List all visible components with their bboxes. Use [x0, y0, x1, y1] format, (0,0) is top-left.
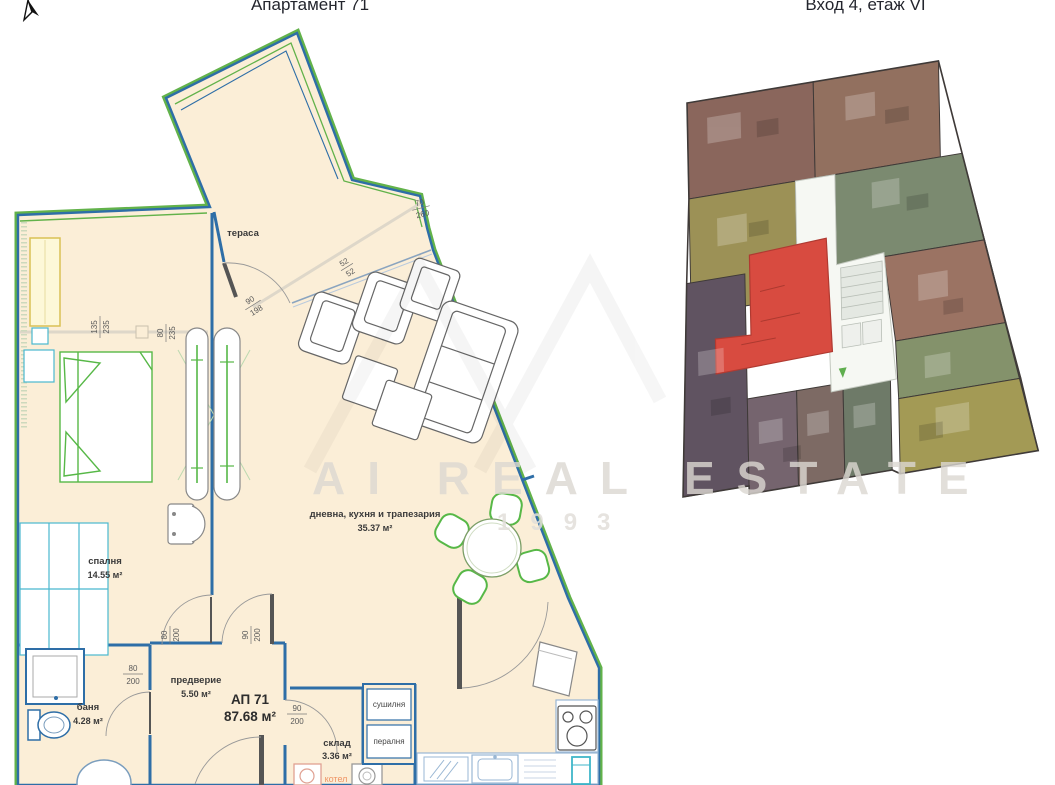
svg-text:235: 235	[168, 326, 177, 340]
bed	[60, 352, 152, 482]
stairwell	[841, 261, 883, 320]
apartment-code: АП 71	[231, 692, 270, 707]
label-laundry: пералня	[373, 737, 404, 746]
label-boiler: котел	[325, 774, 348, 784]
svg-text:200: 200	[126, 677, 140, 686]
room-area-bedroom: 14.55 м²	[88, 570, 123, 580]
svg-text:80: 80	[129, 664, 138, 673]
nightstand	[24, 350, 54, 382]
room-area-hall: 5.50 м²	[181, 689, 211, 699]
closet-boxes	[363, 684, 415, 764]
svg-text:90: 90	[293, 704, 302, 713]
svg-text:90: 90	[241, 630, 250, 639]
svg-text:235: 235	[102, 320, 111, 334]
washing-machine	[352, 764, 382, 785]
room-label-bedroom: спалня	[88, 556, 122, 567]
svg-text:200: 200	[172, 628, 181, 642]
plans-drawing: тераса спалня 14.55 м² дневна, кухня и т…	[0, 0, 1055, 785]
watermark-text: AI REAL ESTATE	[312, 452, 991, 504]
svg-text:80: 80	[160, 630, 169, 639]
bedroom-wardrobe	[20, 523, 108, 655]
room-label-living: дневна, кухня и трапезария	[310, 509, 441, 520]
stove	[558, 706, 596, 750]
room-area-bath: 4.28 м²	[73, 716, 103, 726]
radiator-valve	[32, 328, 48, 344]
dim-chain-node	[136, 326, 148, 338]
boiler-unit	[294, 764, 321, 785]
room-label-terrace: тераса	[227, 228, 259, 239]
room-label-storage: склад	[323, 738, 351, 749]
toilet	[38, 712, 70, 738]
room-area-living: 35.37 м²	[358, 523, 393, 533]
floorplan-page: Апартамент 71 Вход 4, етаж VI	[0, 0, 1055, 785]
room-label-bath: баня	[77, 702, 99, 713]
svg-text:200: 200	[290, 717, 304, 726]
svg-text:135: 135	[90, 320, 99, 334]
label-dryer: сушилня	[373, 700, 405, 709]
dresser	[168, 504, 205, 544]
room-label-hall: предверие	[171, 675, 222, 686]
site-plan	[675, 46, 1038, 510]
apartment-area: 87.68 м²	[224, 709, 277, 724]
tall-wardrobes	[178, 328, 250, 500]
svg-text:200: 200	[253, 628, 262, 642]
fridge	[572, 757, 590, 784]
room-area-storage: 3.36 м²	[322, 751, 352, 761]
watermark-year: 1993	[497, 509, 630, 536]
elevator-2	[863, 319, 882, 344]
svg-text:80: 80	[156, 328, 165, 337]
elevator-1	[842, 323, 861, 348]
